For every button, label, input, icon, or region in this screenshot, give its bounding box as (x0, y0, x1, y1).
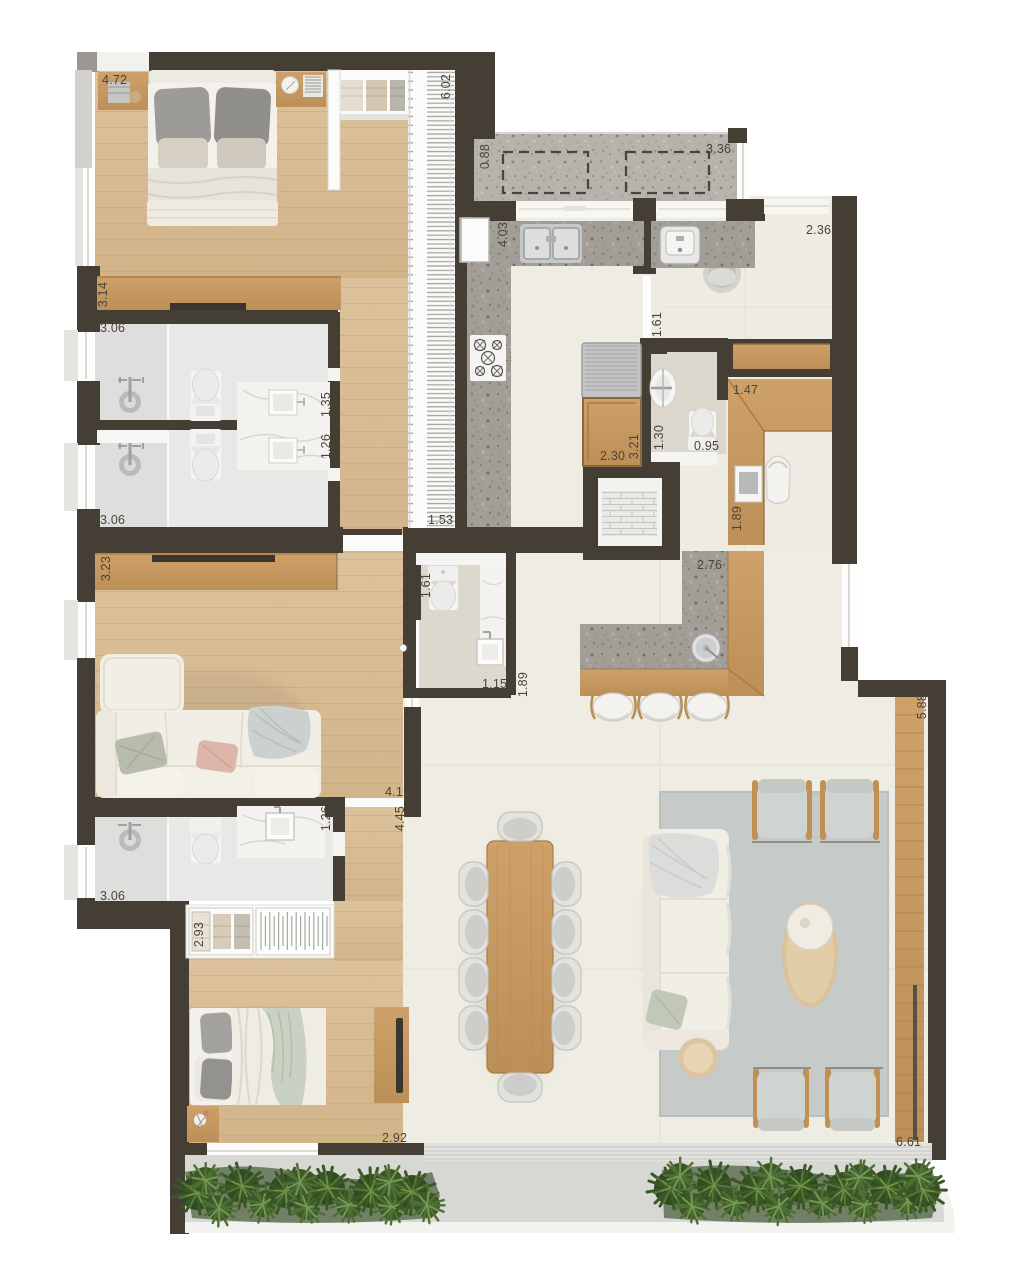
svg-text:0.88: 0.88 (478, 144, 492, 169)
svg-text:1.35: 1.35 (319, 392, 333, 417)
svg-text:3.06: 3.06 (100, 889, 125, 903)
svg-text:4.45: 4.45 (393, 806, 407, 831)
svg-text:1.61: 1.61 (419, 573, 433, 598)
svg-text:4.03: 4.03 (496, 222, 510, 247)
svg-text:1.61: 1.61 (650, 312, 664, 337)
svg-text:2.92: 2.92 (382, 1131, 407, 1145)
svg-text:2.36: 2.36 (806, 223, 831, 237)
svg-text:1.89: 1.89 (516, 672, 530, 697)
svg-text:1.26: 1.26 (319, 434, 333, 459)
svg-text:6.61: 6.61 (896, 1135, 921, 1149)
svg-text:3.23: 3.23 (99, 556, 113, 581)
svg-text:1.47: 1.47 (733, 383, 758, 397)
svg-text:4.12: 4.12 (385, 785, 410, 799)
svg-text:4.72: 4.72 (102, 73, 127, 87)
svg-text:2.93: 2.93 (192, 922, 206, 947)
svg-text:1.15: 1.15 (482, 677, 507, 691)
svg-text:1.30: 1.30 (652, 425, 666, 450)
svg-text:5.88: 5.88 (915, 694, 929, 719)
svg-text:2.30: 2.30 (600, 449, 625, 463)
svg-text:6.02: 6.02 (439, 74, 453, 99)
svg-text:3.06: 3.06 (100, 321, 125, 335)
svg-text:1.26: 1.26 (319, 806, 333, 831)
svg-text:0.95: 0.95 (694, 439, 719, 453)
svg-text:2.76: 2.76 (697, 558, 722, 572)
svg-text:3.21: 3.21 (627, 434, 641, 459)
svg-text:1.53: 1.53 (428, 513, 453, 527)
svg-text:3.06: 3.06 (100, 513, 125, 527)
svg-text:3.14: 3.14 (96, 282, 110, 307)
svg-text:1.89: 1.89 (730, 506, 744, 531)
svg-text:3.36: 3.36 (706, 142, 731, 156)
